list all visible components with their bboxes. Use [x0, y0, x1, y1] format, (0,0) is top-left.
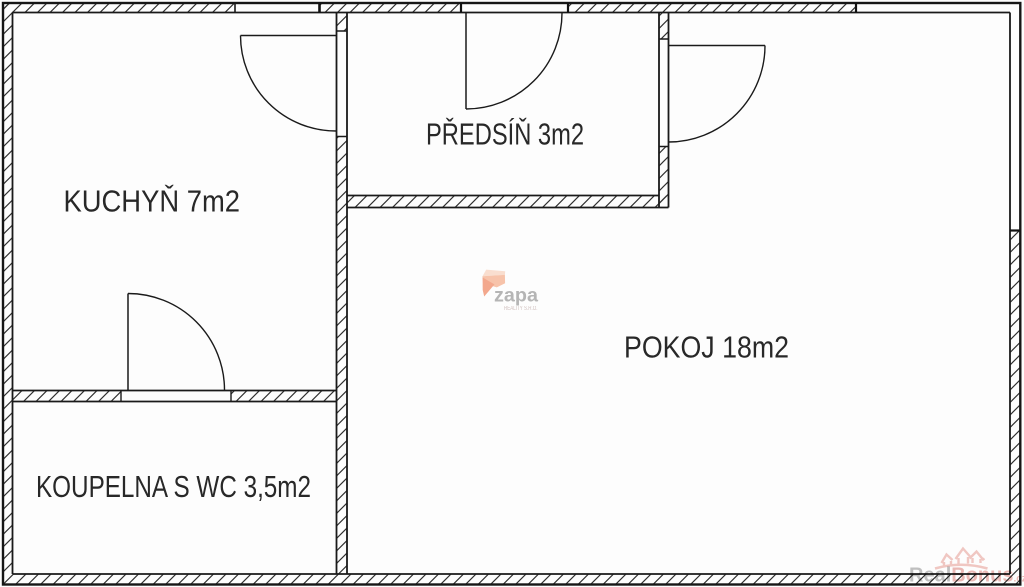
svg-text:KUCHYŇ 7m2: KUCHYŇ 7m2	[64, 184, 241, 219]
svg-text:KOUPELNA S WC 3,5m2: KOUPELNA S WC 3,5m2	[36, 470, 311, 504]
svg-text:POKOJ 18m2: POKOJ 18m2	[624, 331, 789, 365]
svg-text:PŘEDSÍŇ 3m2: PŘEDSÍŇ 3m2	[426, 117, 584, 152]
svg-text:RealBonus.cz: RealBonus.cz	[909, 565, 1024, 587]
svg-text:zapa: zapa	[494, 285, 538, 307]
svg-text:REALITY S.R.O.: REALITY S.R.O.	[504, 306, 538, 312]
